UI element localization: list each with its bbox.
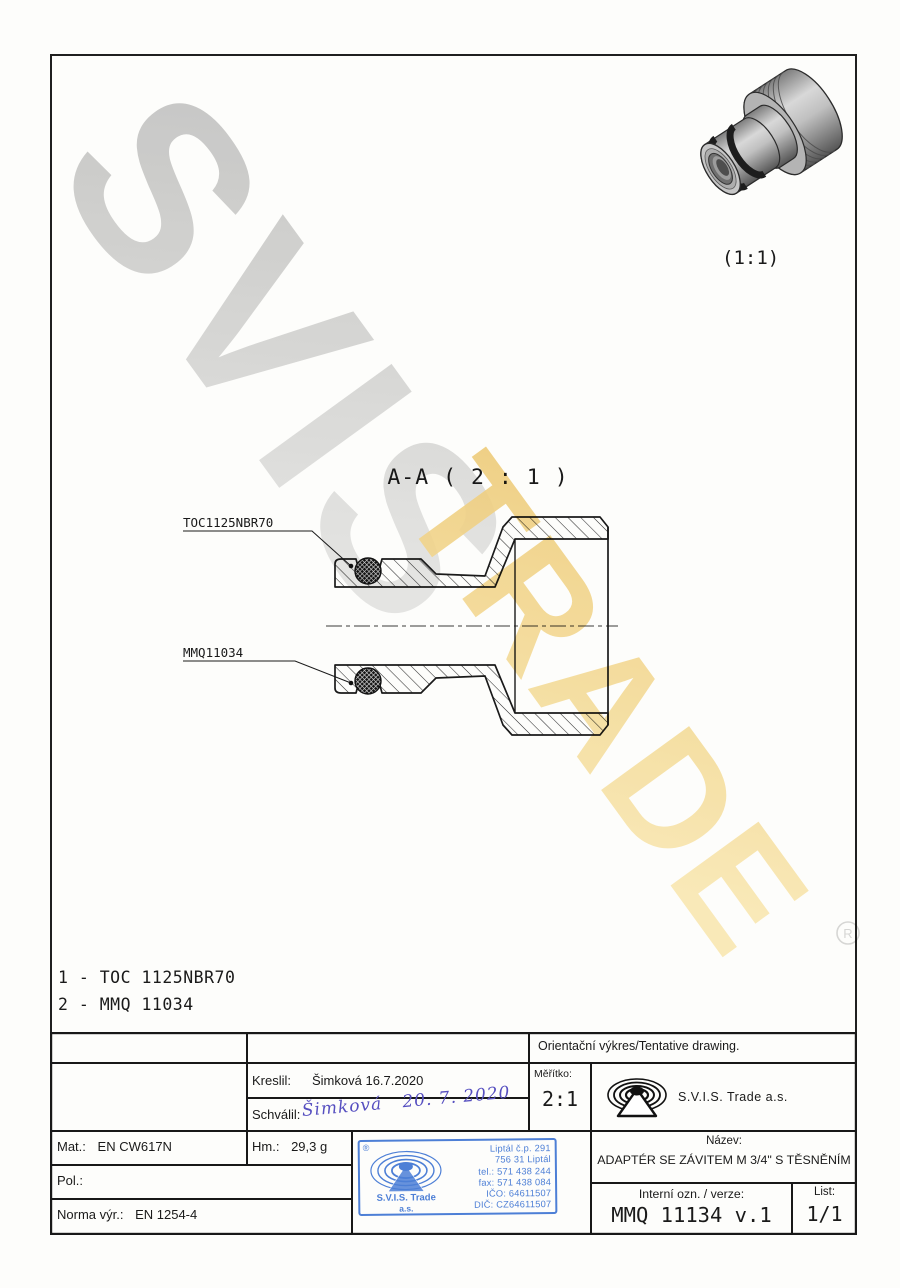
material-value: EN CW617N (98, 1139, 172, 1154)
list-value: 1/1 (792, 1203, 857, 1226)
pictorial-scale-label: (1:1) (722, 248, 779, 270)
list-label: List: (792, 1186, 857, 1199)
stamp-company-line2: a.s. (368, 1203, 444, 1214)
svis-stamp-logo (368, 1150, 444, 1193)
interni-value: MMQ 11134 v.1 (591, 1204, 792, 1228)
leader-line-top (183, 531, 351, 566)
standard-value: EN 1254-4 (135, 1207, 197, 1222)
nazev-label: Název: (591, 1135, 857, 1148)
material-field: Mat.: EN CW617N (57, 1140, 172, 1155)
stamp-address-line: Liptál č.p. 291 (473, 1143, 550, 1155)
standard-field: Norma výr.: EN 1254-4 (57, 1208, 197, 1223)
section-title: A-A ( 2 : 1 ) (387, 465, 568, 490)
weight-label: Hm.: (252, 1139, 279, 1154)
kreslil-label: Kreslil: (252, 1074, 291, 1089)
callout-top-label: TOC1125NBR70 (183, 515, 273, 530)
callout-bottom-label: MMQ11034 (183, 645, 243, 660)
title-block: Orientační výkres/Tentative drawing. Kre… (50, 1032, 857, 1235)
weight-value: 29,3 g (291, 1139, 327, 1154)
leader-line-bottom (183, 661, 351, 683)
stamp-address-line: tel.: 571 438 244 (474, 1166, 551, 1178)
standard-label: Norma výr.: (57, 1207, 123, 1222)
section-view: A-A ( 2 : 1 ) TOC1125NBR70 MMQ11034 (170, 455, 630, 775)
o-ring-bottom (355, 668, 381, 694)
weight-field: Hm.: 29,3 g (252, 1140, 327, 1155)
stamp-address-line: IČO: 64611507 (474, 1188, 551, 1200)
parts-list-item-1: 1 - TOC 1125NBR70 (58, 969, 235, 988)
part-3d-view (660, 52, 860, 222)
orientation-note: Orientační výkres/Tentative drawing. (538, 1039, 739, 1053)
meritko-label: Měřítko: (534, 1068, 572, 1080)
stamp-address: Liptál č.p. 291 756 31 Liptál tel.: 571 … (473, 1143, 551, 1212)
position-field: Pol.: (57, 1174, 83, 1189)
drawing-sheet: A-A ( 2 : 1 ) TOC1125NBR70 MMQ11034 (0, 0, 900, 1288)
company-name: S.V.I.S. Trade a.s. (678, 1090, 788, 1104)
kreslil-value: Šimková 16.7.2020 (312, 1074, 423, 1089)
company-stamp: ® S.V.I.S. Trade a.s. Liptál č.p. 291 75… (358, 1138, 558, 1216)
leader-dot-top (349, 564, 354, 569)
parts-list-item-2: 2 - MMQ 11034 (58, 996, 194, 1015)
material-label: Mat.: (57, 1139, 86, 1154)
interni-label: Interní ozn. / verze: (591, 1187, 792, 1201)
nazev-value: ADAPTÉR SE ZÁVITEM M 3/4" S TĚSNĚNÍM (591, 1153, 857, 1167)
stamp-address-line: 756 31 Liptál (474, 1154, 551, 1166)
meritko-value: 2:1 (529, 1088, 591, 1111)
stamp-address-line: DIČ: CZ64611507 (474, 1200, 551, 1212)
leader-dot-bottom (349, 681, 354, 686)
stamp-company-line1: S.V.I.S. Trade (368, 1192, 444, 1204)
schvalil-label: Schválil: (252, 1108, 300, 1123)
o-ring-top (355, 558, 381, 584)
stamp-address-line: fax: 571 438 084 (474, 1177, 551, 1189)
svis-logo (606, 1076, 668, 1118)
